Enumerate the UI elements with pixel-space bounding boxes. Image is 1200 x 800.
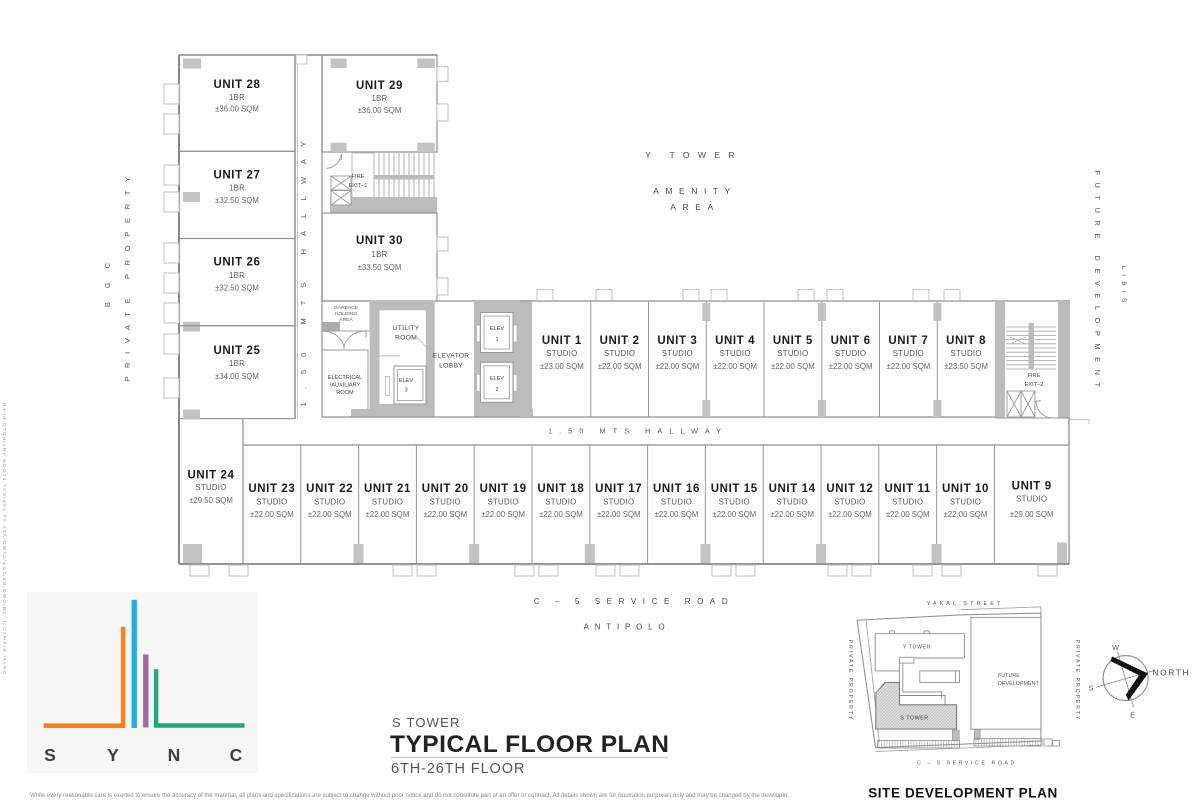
svg-text:UNIT 22: UNIT 22 xyxy=(306,483,353,495)
svg-text:±22.00 SQM: ±22.00 SQM xyxy=(713,362,757,371)
svg-text:UNIT 4: UNIT 4 xyxy=(715,335,755,347)
svg-text:STUDIO: STUDIO xyxy=(195,483,226,492)
svg-text:1BR: 1BR xyxy=(229,93,245,102)
svg-text:±22.00 SQM: ±22.00 SQM xyxy=(250,510,294,519)
svg-text:YAKAL STREET: YAKAL STREET xyxy=(927,601,1003,607)
svg-text:ELEV: ELEV xyxy=(490,326,505,332)
svg-text:UNIT 12: UNIT 12 xyxy=(826,483,873,495)
svg-text:STUDIO: STUDIO xyxy=(604,349,635,358)
svg-text:±22.00 SQM: ±22.00 SQM xyxy=(944,510,988,519)
svg-text:STUDIO: STUDIO xyxy=(661,497,692,506)
svg-text:UNIT 28: UNIT 28 xyxy=(213,79,260,91)
svg-text:1BR: 1BR xyxy=(229,359,245,368)
svg-text:Owner Project/JL_SB/DWG/BP/LG: Owner Project/JL_SB/DWG/BP/LGF/CLMO-V2A … xyxy=(2,402,8,674)
svg-text:UNIT 7: UNIT 7 xyxy=(888,335,928,347)
svg-text:FIRE: FIRE xyxy=(1028,373,1041,379)
svg-text:±22.00 SQM: ±22.00 SQM xyxy=(655,510,699,519)
svg-text:S: S xyxy=(44,745,56,765)
svg-text:±34.00 SQM: ±34.00 SQM xyxy=(215,372,259,381)
svg-text:S: S xyxy=(1089,684,1094,693)
svg-text:DEVELOPMENT: DEVELOPMENT xyxy=(998,681,1039,687)
svg-text:±22.00 SQM: ±22.00 SQM xyxy=(712,510,756,519)
svg-text:UNIT 10: UNIT 10 xyxy=(942,483,989,495)
svg-text:E: E xyxy=(1130,711,1135,720)
svg-text:EXIT–1: EXIT–1 xyxy=(349,183,368,189)
svg-text:PRIVATE PROPERTY: PRIVATE PROPERTY xyxy=(1074,640,1080,721)
svg-text:W: W xyxy=(1112,643,1119,652)
svg-text:STUDIO: STUDIO xyxy=(1016,495,1047,504)
svg-text:1BR: 1BR xyxy=(229,184,245,193)
svg-text:±36.00 SQM: ±36.00 SQM xyxy=(358,106,402,115)
svg-text:STUDIO: STUDIO xyxy=(950,349,981,358)
svg-text:2: 2 xyxy=(495,387,498,393)
svg-text:±29.00 SQM: ±29.00 SQM xyxy=(1010,510,1054,519)
svg-text:±22.00 SQM: ±22.00 SQM xyxy=(887,362,931,371)
svg-text:±23.00 SQM: ±23.00 SQM xyxy=(540,362,584,371)
svg-text:UNIT 17: UNIT 17 xyxy=(595,483,642,495)
svg-text:UNIT 8: UNIT 8 xyxy=(946,335,986,347)
svg-text:STUDIO: STUDIO xyxy=(314,497,345,506)
svg-text:±22.00 SQM: ±22.00 SQM xyxy=(886,510,930,519)
svg-text:NORTH: NORTH xyxy=(1153,668,1191,678)
svg-text:FUTURE: FUTURE xyxy=(998,673,1020,679)
svg-text:3: 3 xyxy=(404,388,407,394)
svg-text:STUDIO: STUDIO xyxy=(834,497,865,506)
svg-text:UNIT 25: UNIT 25 xyxy=(213,345,260,357)
svg-text:PRIVATE PROPERTY: PRIVATE PROPERTY xyxy=(123,168,132,381)
svg-text:ELEV: ELEV xyxy=(399,378,414,384)
svg-text:Y TOWER: Y TOWER xyxy=(903,645,931,651)
svg-text:STUDIO: STUDIO xyxy=(603,497,634,506)
svg-text:GARBAGE: GARBAGE xyxy=(334,305,359,311)
svg-text:Y TOWER: Y TOWER xyxy=(645,150,743,160)
svg-text:STUDIO: STUDIO xyxy=(546,349,577,358)
svg-text:ELEV: ELEV xyxy=(490,376,505,382)
svg-text:SITE DEVELOPMENT PLAN: SITE DEVELOPMENT PLAN xyxy=(868,786,1058,800)
svg-text:±32.50 SQM: ±32.50 SQM xyxy=(215,284,259,293)
svg-text:STUDIO: STUDIO xyxy=(777,349,808,358)
svg-text:±22.00 SQM: ±22.00 SQM xyxy=(656,362,700,371)
svg-text:Y: Y xyxy=(107,745,119,765)
svg-text:±22.00 SQM: ±22.00 SQM xyxy=(423,510,467,519)
svg-text:±22.00 SQM: ±22.00 SQM xyxy=(308,510,352,519)
svg-text:STUDIO: STUDIO xyxy=(776,497,807,506)
svg-text:ANTIPOLO: ANTIPOLO xyxy=(584,623,671,632)
svg-text:UNIT 19: UNIT 19 xyxy=(480,483,527,495)
svg-text:UTILITY: UTILITY xyxy=(393,325,420,332)
svg-text:1: 1 xyxy=(495,337,498,343)
svg-text:HOLDING: HOLDING xyxy=(335,311,357,317)
svg-text:AMENITY: AMENITY xyxy=(653,186,737,196)
svg-text:LIBIS: LIBIS xyxy=(1120,265,1127,307)
svg-text:±29.50 SQM: ±29.50 SQM xyxy=(189,496,233,505)
svg-text:±23.50 SQM: ±23.50 SQM xyxy=(944,362,988,371)
svg-text:STUDIO: STUDIO xyxy=(662,349,693,358)
svg-text:STUDIO: STUDIO xyxy=(487,497,518,506)
svg-text:UNIT 5: UNIT 5 xyxy=(773,335,813,347)
svg-text:±22.00 SQM: ±22.00 SQM xyxy=(539,510,583,519)
svg-text:UNIT 30: UNIT 30 xyxy=(356,235,403,247)
svg-text:C – 5 SERVICE ROAD: C – 5 SERVICE ROAD xyxy=(917,761,1017,767)
svg-text:UNIT 27: UNIT 27 xyxy=(213,170,260,182)
svg-text:UNIT 1: UNIT 1 xyxy=(542,335,582,347)
svg-text:±22.00 SQM: ±22.00 SQM xyxy=(366,510,410,519)
svg-text:TYPICAL FLOOR PLAN: TYPICAL FLOOR PLAN xyxy=(390,731,669,758)
svg-text:6TH-26TH FLOOR: 6TH-26TH FLOOR xyxy=(391,761,525,777)
svg-text:ROOM: ROOM xyxy=(395,335,417,342)
svg-text:±22.00 SQM: ±22.00 SQM xyxy=(828,510,872,519)
svg-text:1BR: 1BR xyxy=(371,250,387,259)
svg-text:UNIT 11: UNIT 11 xyxy=(885,483,931,495)
svg-text:STUDIO: STUDIO xyxy=(892,497,923,506)
svg-text:±22.00 SQM: ±22.00 SQM xyxy=(481,510,525,519)
svg-text:N: N xyxy=(168,745,181,765)
svg-text:UNIT 16: UNIT 16 xyxy=(653,483,700,495)
svg-text:UNIT 18: UNIT 18 xyxy=(537,483,584,495)
svg-text:S TOWER: S TOWER xyxy=(392,715,461,730)
svg-text:PRIVATE PROPERTY: PRIVATE PROPERTY xyxy=(847,640,853,721)
svg-text:±32.50 SQM: ±32.50 SQM xyxy=(215,196,259,205)
svg-text:±22.00 SQM: ±22.00 SQM xyxy=(770,510,814,519)
svg-text:UNIT 26: UNIT 26 xyxy=(213,257,260,269)
svg-text:While every reasonable care is: While every reasonable care is exerted t… xyxy=(30,793,789,799)
svg-text:±22.00 SQM: ±22.00 SQM xyxy=(598,362,642,371)
svg-text:STUDIO: STUDIO xyxy=(256,497,287,506)
svg-text:LOBBY: LOBBY xyxy=(439,363,463,370)
svg-text:/AUXILIARY: /AUXILIARY xyxy=(330,383,361,389)
svg-text:±22.00 SQM: ±22.00 SQM xyxy=(829,362,873,371)
svg-text:UNIT 9: UNIT 9 xyxy=(1012,481,1052,493)
svg-text:UNIT 15: UNIT 15 xyxy=(711,483,758,495)
svg-text:UNIT 2: UNIT 2 xyxy=(600,335,640,347)
svg-text:UNIT 6: UNIT 6 xyxy=(831,335,871,347)
svg-text:STUDIO: STUDIO xyxy=(719,349,750,358)
svg-text:STUDIO: STUDIO xyxy=(835,349,866,358)
svg-text:AREA: AREA xyxy=(339,317,353,323)
svg-text:STUDIO: STUDIO xyxy=(719,497,750,506)
svg-text:UNIT 29: UNIT 29 xyxy=(356,80,403,92)
svg-text:ELECTRICAL: ELECTRICAL xyxy=(328,375,363,381)
svg-text:C: C xyxy=(230,745,243,765)
svg-text:STUDIO: STUDIO xyxy=(430,497,461,506)
svg-text:ELEVATOR: ELEVATOR xyxy=(433,353,470,360)
svg-text:±33.50 SQM: ±33.50 SQM xyxy=(358,263,402,272)
svg-text:STUDIO: STUDIO xyxy=(545,497,576,506)
svg-text:UNIT 21: UNIT 21 xyxy=(364,483,411,495)
svg-text:±36.00 SQM: ±36.00 SQM xyxy=(215,105,259,114)
svg-text:1.50 MTS HALLWAY: 1.50 MTS HALLWAY xyxy=(299,129,308,407)
svg-text:AREA: AREA xyxy=(670,202,719,212)
svg-text:UNIT 23: UNIT 23 xyxy=(248,483,295,495)
svg-text:1.50 MTS HALLWAY: 1.50 MTS HALLWAY xyxy=(548,427,728,436)
svg-text:UNIT 20: UNIT 20 xyxy=(422,483,469,495)
svg-text:S TOWER: S TOWER xyxy=(900,716,928,722)
svg-text:1BR: 1BR xyxy=(371,94,387,103)
svg-text:BGC: BGC xyxy=(103,249,112,307)
svg-text:STUDIO: STUDIO xyxy=(950,497,981,506)
svg-text:±22.00 SQM: ±22.00 SQM xyxy=(771,362,815,371)
svg-text:C – 5 SERVICE ROAD: C – 5 SERVICE ROAD xyxy=(534,597,734,606)
svg-text:±22.00 SQM: ±22.00 SQM xyxy=(597,510,641,519)
svg-text:UNIT 14: UNIT 14 xyxy=(769,483,816,495)
svg-text:STUDIO: STUDIO xyxy=(893,349,924,358)
svg-text:UNIT 24: UNIT 24 xyxy=(187,470,234,482)
svg-text:1BR: 1BR xyxy=(229,271,245,280)
svg-text:FIRE: FIRE xyxy=(352,174,365,180)
svg-text:EXIT–2: EXIT–2 xyxy=(1025,382,1044,388)
svg-text:STUDIO: STUDIO xyxy=(372,497,403,506)
svg-text:UNIT 3: UNIT 3 xyxy=(657,335,697,347)
svg-text:ROOM: ROOM xyxy=(336,390,354,396)
svg-text:FUTURE DEVELOPMENT: FUTURE DEVELOPMENT xyxy=(1093,170,1102,394)
